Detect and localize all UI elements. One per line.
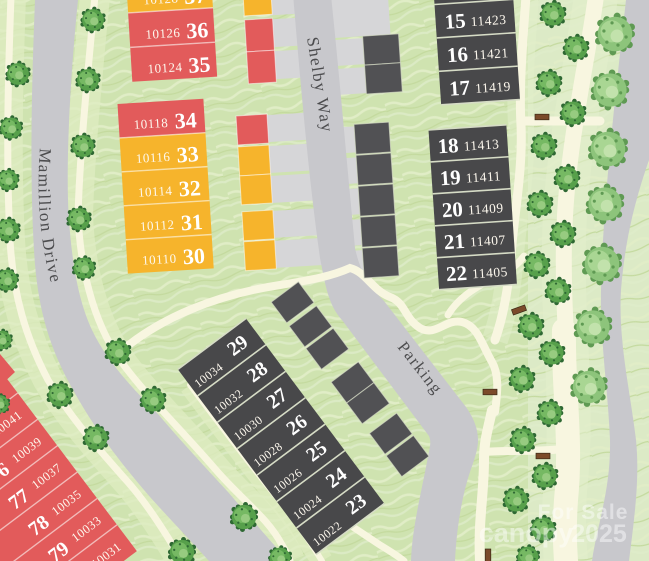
- svg-text:21: 21: [443, 229, 466, 254]
- svg-text:36: 36: [186, 17, 209, 43]
- svg-text:15: 15: [444, 8, 467, 33]
- svg-text:10118: 10118: [133, 115, 168, 132]
- svg-text:11419: 11419: [475, 79, 512, 96]
- svg-text:11413: 11413: [463, 136, 500, 153]
- svg-text:37: 37: [183, 0, 206, 9]
- svg-text:11423: 11423: [470, 12, 507, 29]
- svg-text:10110: 10110: [142, 251, 177, 268]
- svg-text:11405: 11405: [472, 264, 509, 281]
- svg-text:32: 32: [178, 175, 201, 201]
- svg-text:10126: 10126: [145, 25, 181, 42]
- svg-text:10112: 10112: [140, 217, 175, 234]
- svg-text:10116: 10116: [135, 149, 170, 166]
- svg-text:16: 16: [446, 42, 469, 67]
- svg-text:2025: 2025: [571, 520, 627, 548]
- svg-text:31: 31: [180, 209, 203, 235]
- svg-text:18: 18: [437, 133, 460, 158]
- svg-text:11411: 11411: [465, 168, 501, 185]
- svg-text:11409: 11409: [467, 200, 504, 217]
- svg-text:19: 19: [439, 165, 462, 190]
- svg-text:10114: 10114: [137, 183, 172, 200]
- svg-text:33: 33: [176, 141, 199, 167]
- svg-text:canopy: canopy: [479, 518, 574, 548]
- svg-text:20: 20: [441, 197, 464, 222]
- svg-text:11421: 11421: [472, 45, 509, 62]
- svg-text:35: 35: [188, 52, 211, 78]
- svg-text:22: 22: [445, 261, 468, 286]
- svg-text:34: 34: [174, 107, 197, 133]
- svg-text:10124: 10124: [147, 59, 183, 76]
- svg-text:17: 17: [448, 75, 471, 100]
- svg-text:11407: 11407: [470, 232, 507, 249]
- svg-text:30: 30: [182, 243, 205, 269]
